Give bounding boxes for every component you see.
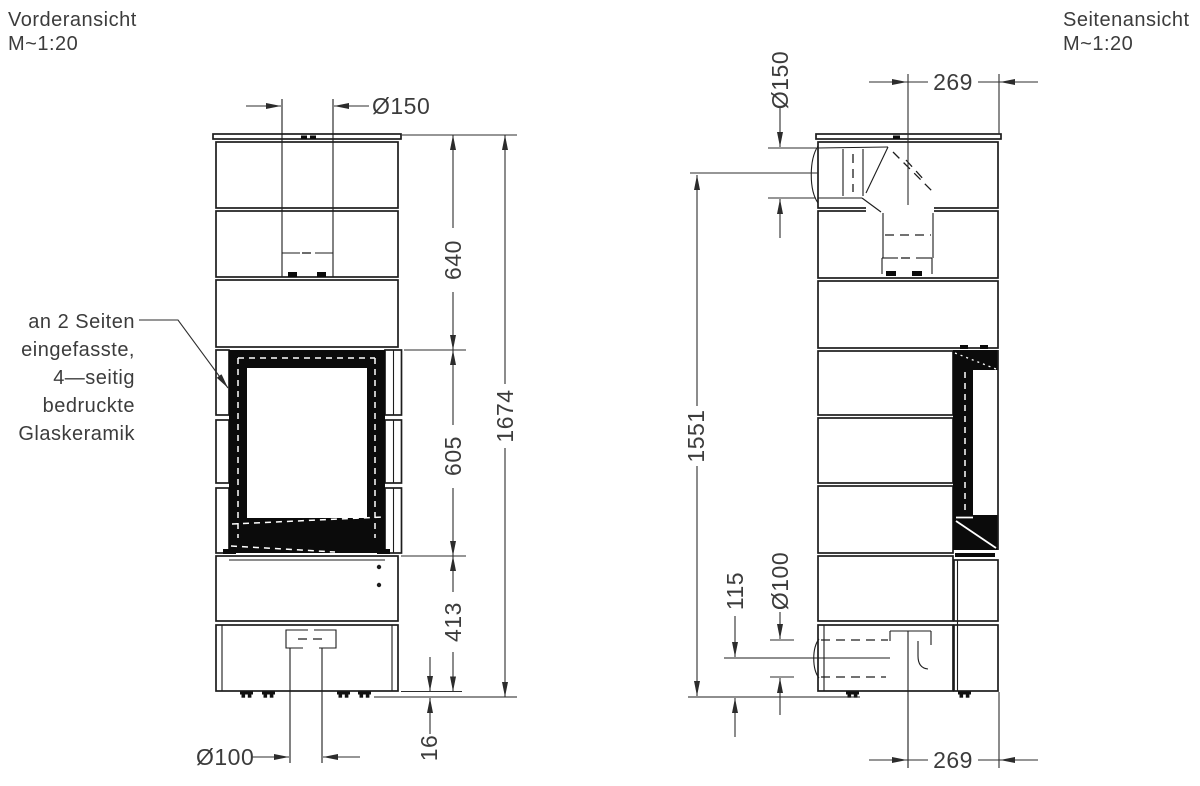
side-view: Seitenansicht M~1:20 [683,9,1190,773]
dim-flue-diameter-side: Ø150 [767,51,793,109]
front-view-title: Vorderansicht [8,9,137,31]
dim-total-height: 1674 [492,389,518,442]
front-view-scale: M~1:20 [8,33,78,55]
front-flue-pipe [282,99,333,277]
door-hinge-pin [377,565,381,569]
front-feet [240,692,517,698]
glass-annotation-line-1: an 2 Seiten [28,311,135,333]
glass-annotation-line-5: Glaskeramik [18,423,135,445]
dim-window-height: 605 [440,436,466,476]
drawing-sheet: Vorderansicht M~1:20 [0,0,1200,786]
front-view: Vorderansicht M~1:20 [8,9,518,770]
dim-base-height: 413 [440,602,466,642]
dim-flue-offset-top: 269 [933,69,973,95]
side-feet [688,692,971,698]
dim-plinth-height: 16 [416,735,442,762]
dim-flue-diameter-front: Ø150 [372,93,430,119]
side-glass-window [973,370,998,515]
side-view-scale: M~1:20 [1063,33,1133,55]
dim-air-offset-bottom: 269 [933,747,973,773]
dim-air-center-height: 115 [722,572,748,610]
glass-annotation: an 2 Seiten eingefasste, 4—seitig bedruc… [18,311,228,445]
dim-flue-center-height: 1551 [683,409,709,462]
door-hinge-pin [377,583,381,587]
dim-air-diameter-front: Ø100 [196,744,254,770]
front-glass-door [216,350,398,587]
glass-annotation-line-4: bedruckte [43,395,135,417]
glass-annotation-line-3: 4—seitig [53,367,135,389]
side-glass-column [953,345,998,557]
front-air-inlet [286,630,336,763]
dim-upper-height: 640 [440,240,466,280]
dim-air-diameter-side: Ø100 [767,552,793,610]
side-view-title: Seitenansicht [1063,9,1190,31]
annotation-leader-line [139,320,228,388]
glass-window [247,368,367,518]
technical-drawing: Vorderansicht M~1:20 [0,0,1200,786]
side-air-inlet [724,631,931,768]
glass-annotation-line-2: eingefasste, [21,339,135,361]
